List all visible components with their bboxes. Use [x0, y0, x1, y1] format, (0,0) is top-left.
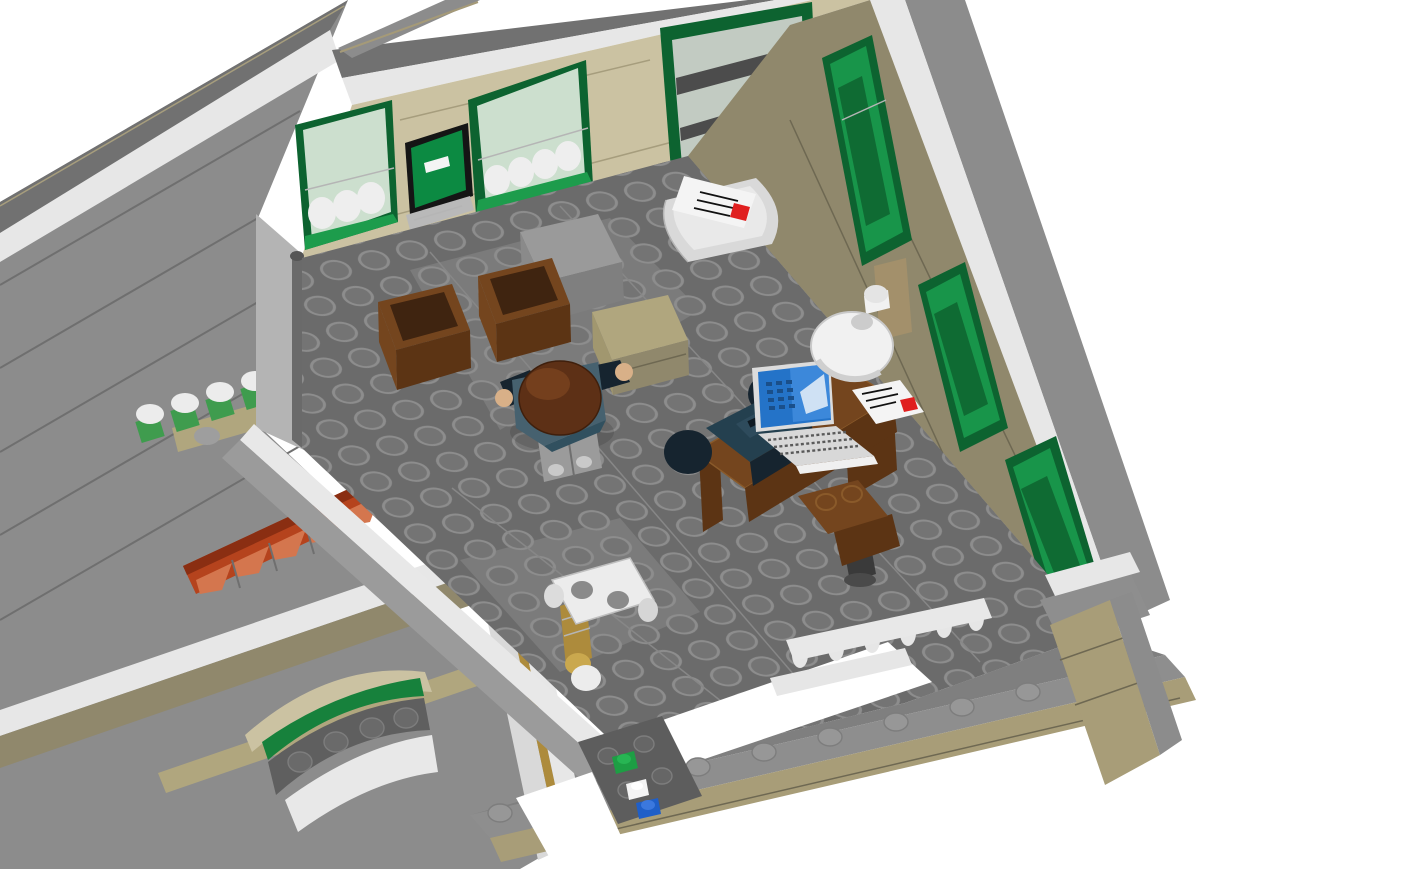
curtain-swag-3	[357, 182, 385, 214]
arch-stud-1	[288, 752, 312, 772]
minifig-foot-stud-2	[576, 456, 592, 468]
brick-stud	[631, 782, 643, 790]
minifig-hand-right	[615, 363, 633, 381]
cap-stud	[818, 728, 842, 746]
curtain-swag-4	[555, 141, 581, 171]
minifig-foot-stud-1	[548, 464, 564, 476]
scale-ball-base	[571, 665, 601, 691]
lego-scene	[0, 0, 1424, 869]
curtain-swag-3	[532, 149, 558, 179]
curtain-swag-1	[308, 197, 336, 229]
cap-stud	[884, 713, 908, 731]
scale-hole-2	[607, 591, 629, 609]
plate-stud	[634, 736, 654, 752]
arch-stud-2	[324, 732, 348, 752]
minifig-hair-highlight	[526, 368, 570, 400]
scale-hole-1	[571, 581, 593, 599]
cap-stud	[950, 698, 974, 716]
minifig-hand-left	[495, 389, 513, 407]
plate-stud	[652, 768, 672, 784]
lamp-collar	[851, 314, 873, 330]
cap-stud	[1016, 683, 1040, 701]
arch-stud-3	[360, 718, 384, 738]
cap-stud	[752, 743, 776, 761]
render-viewport	[0, 0, 1424, 869]
brick-stud	[641, 800, 655, 810]
brick-stud	[617, 754, 631, 764]
typewriter-knob-left	[664, 430, 712, 474]
curtain-swag-2	[508, 157, 534, 187]
chair-base	[844, 573, 876, 587]
lamp-arm-joint	[864, 285, 888, 303]
flowers	[136, 404, 164, 424]
scale-end-cylinder-left	[544, 584, 564, 608]
flowers	[171, 393, 199, 413]
curtain-swag-2	[333, 190, 361, 222]
arch-stud-4	[394, 708, 418, 728]
scale-end-cylinder-right	[638, 598, 658, 622]
corner-pole-top	[290, 251, 304, 261]
curtain-swag-1	[484, 165, 510, 195]
flowers	[206, 382, 234, 402]
gray-bowl	[194, 427, 220, 445]
cap-stud	[488, 804, 512, 822]
corner-pole	[292, 252, 302, 448]
